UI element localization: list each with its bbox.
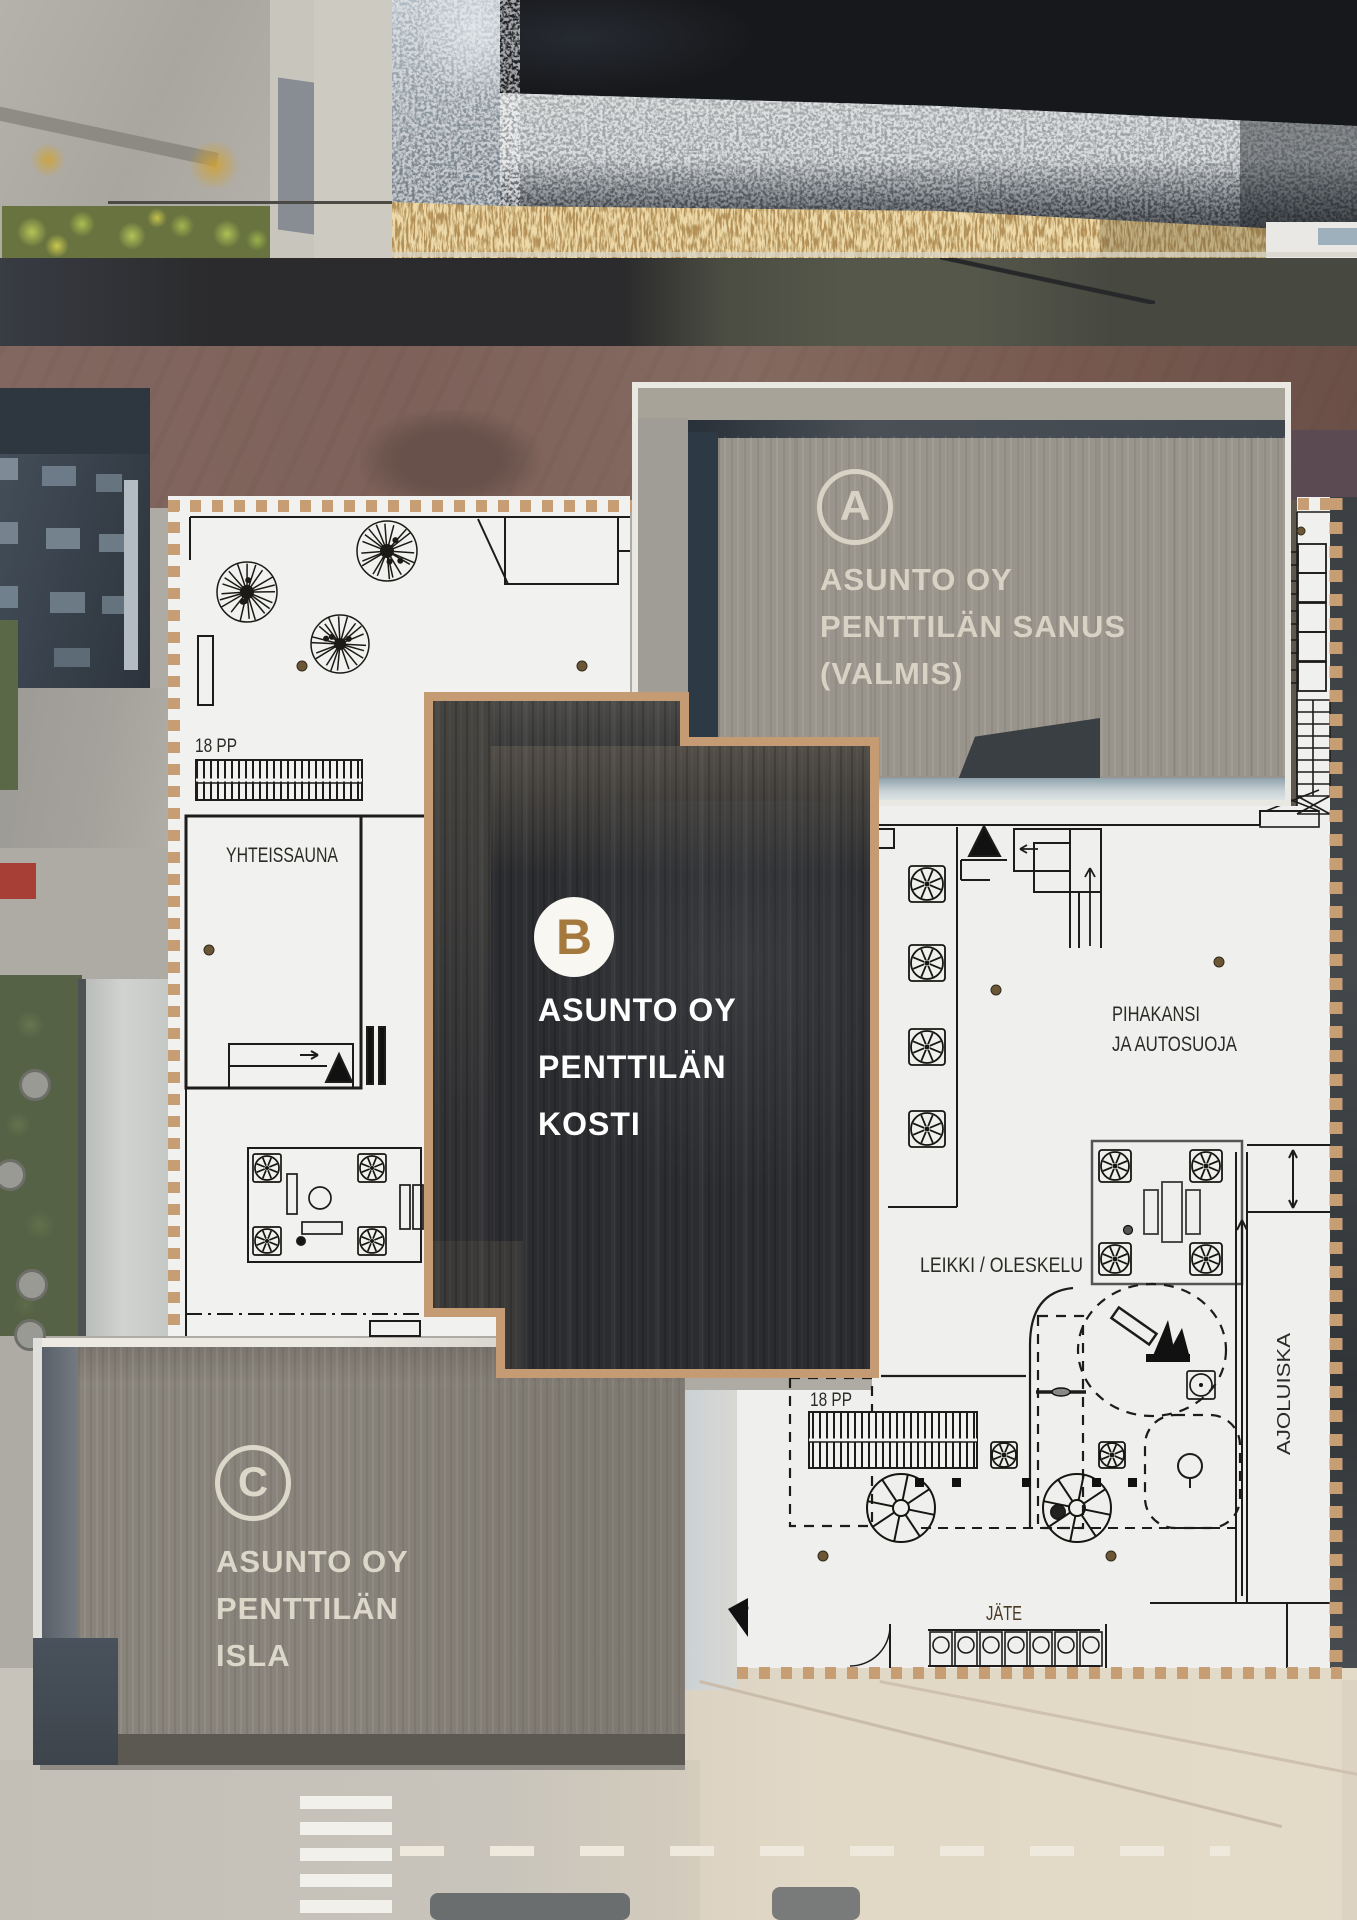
- svg-text:18 PP: 18 PP: [810, 1390, 852, 1411]
- svg-text:PIHAKANSI: PIHAKANSI: [1112, 1003, 1200, 1026]
- svg-text:AJOLUISKA: AJOLUISKA: [1274, 1333, 1294, 1455]
- svg-text:JA AUTOSUOJA: JA AUTOSUOJA: [1112, 1033, 1237, 1056]
- svg-text:JÄTE: JÄTE: [986, 1603, 1022, 1625]
- svg-text:18 PP: 18 PP: [195, 736, 237, 757]
- svg-text:YHTEISSAUNA: YHTEISSAUNA: [226, 844, 338, 867]
- svg-text:LEIKKI / OLESKELU: LEIKKI / OLESKELU: [920, 1254, 1083, 1277]
